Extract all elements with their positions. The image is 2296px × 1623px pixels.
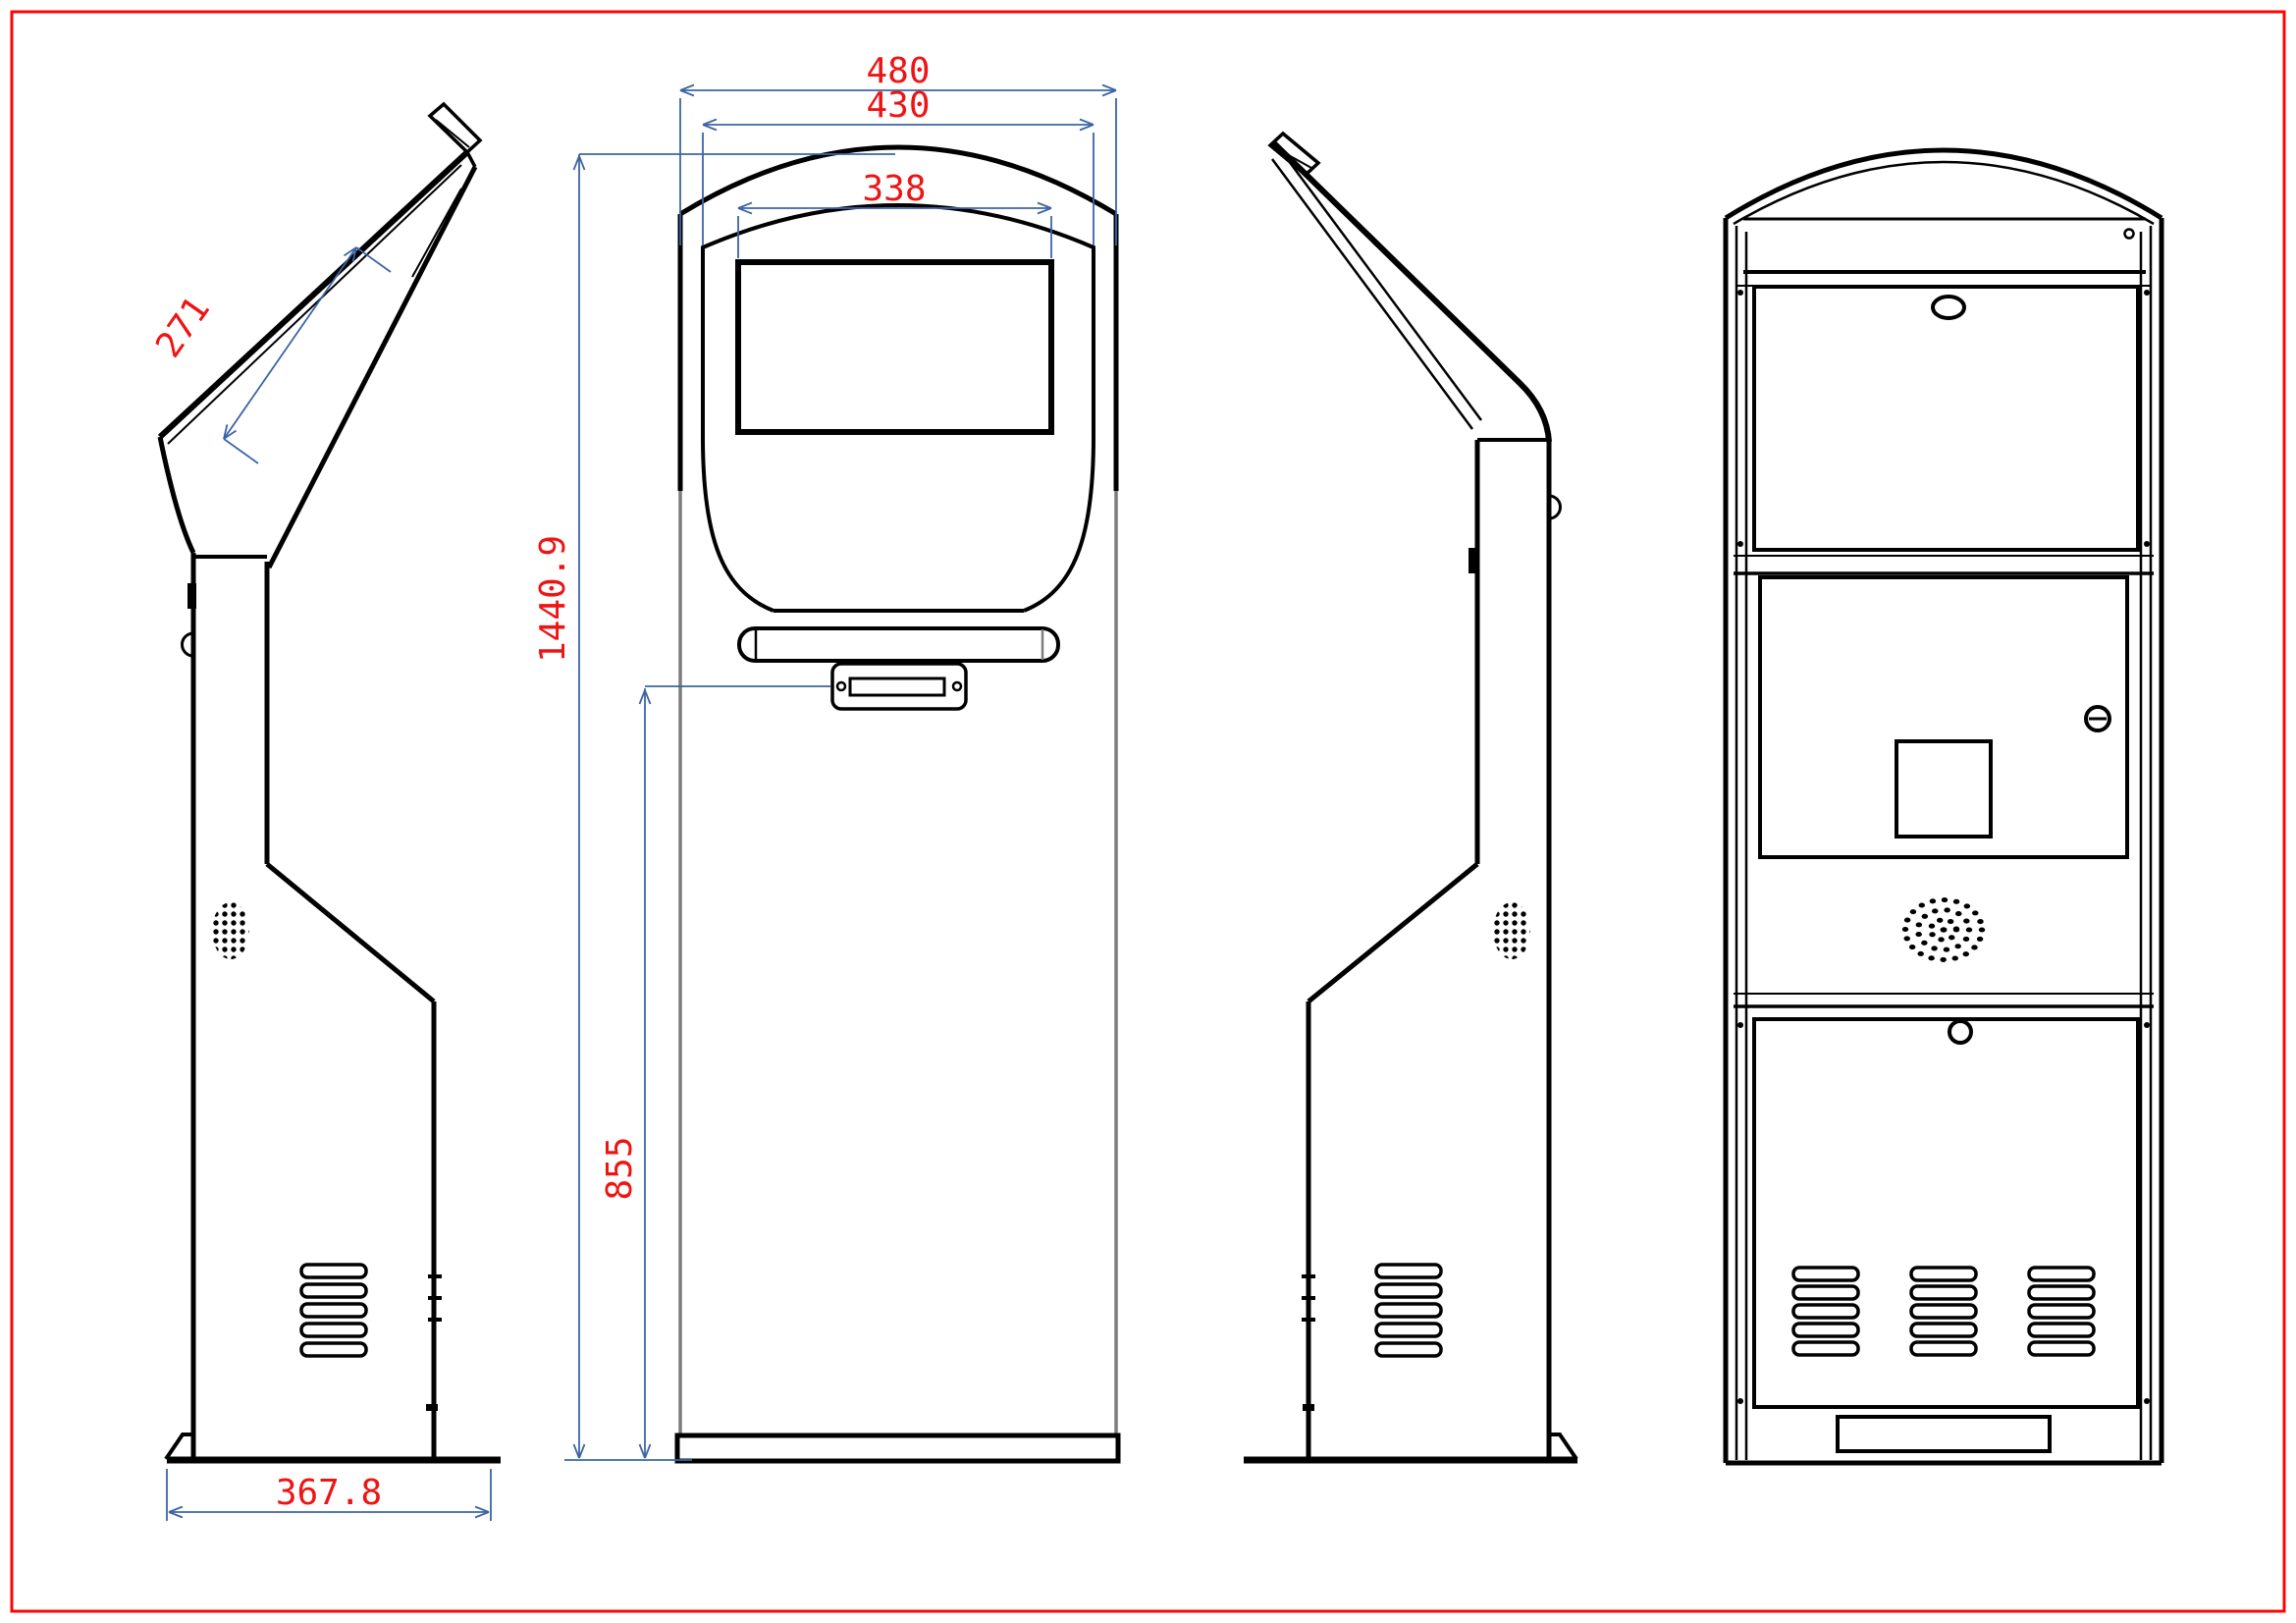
- vent-louver: [1911, 1324, 1976, 1336]
- front-latch: [187, 583, 196, 609]
- hinge-screw: [2144, 1022, 2150, 1028]
- hinge-screw: [1737, 1022, 1743, 1028]
- dim-text-430: 430: [866, 85, 930, 126]
- vent-louver: [1793, 1324, 1858, 1336]
- front-foot-bracket: [1549, 1434, 1576, 1459]
- vent-louver: [301, 1265, 366, 1277]
- dimension-total-height: 1440.9: [533, 154, 895, 1460]
- card-reader-plate: [832, 664, 966, 709]
- reader-slot: [850, 678, 944, 695]
- vent-louver: [1911, 1268, 1976, 1280]
- hinge-screw: [2144, 290, 2150, 296]
- bezel-face-outline: [703, 205, 1094, 437]
- vent-louver: [1793, 1305, 1858, 1318]
- upper-door: [1754, 287, 2138, 550]
- top-strip-screw: [2125, 230, 2134, 239]
- top-arch-outer: [1726, 150, 2162, 218]
- rear-latch-dot: [1303, 1404, 1314, 1411]
- lower-door: [1754, 1019, 2138, 1407]
- dim-text-855: 855: [600, 1136, 640, 1200]
- dim-text-1440-9: 1440.9: [533, 535, 573, 663]
- base-slot: [1838, 1417, 2050, 1451]
- hinge-screw: [1737, 541, 1743, 547]
- hinge-screw: [2144, 541, 2150, 547]
- vent-louver: [2029, 1286, 2094, 1299]
- base-plinth: [677, 1435, 1118, 1461]
- vent-louver: [1911, 1305, 1976, 1318]
- dim-text-367-8: 367.8: [276, 1473, 382, 1513]
- vent-louver: [301, 1324, 366, 1336]
- vent-louver: [2029, 1342, 2094, 1355]
- keyboard-tray-slot: [739, 628, 1058, 661]
- vent-louver: [301, 1304, 366, 1317]
- square-cutout: [1896, 741, 1991, 837]
- dimension-card-reader-height: 855: [600, 686, 830, 1458]
- hinge-screw: [1737, 290, 1743, 296]
- hinge-screw: [2144, 1398, 2150, 1404]
- dim-text-271: 271: [148, 290, 218, 365]
- reader-screw-right: [953, 682, 961, 690]
- right-side-view: [1244, 134, 1577, 1460]
- rear-view: [1726, 150, 2162, 1463]
- vent-louver: [301, 1284, 366, 1297]
- reader-plate-outline: [832, 664, 966, 709]
- screen-slope-edge: [160, 152, 467, 437]
- head-chin-curve: [160, 437, 193, 553]
- dimension-base-depth: 367.8: [167, 1469, 491, 1521]
- vent-louver: [1376, 1324, 1441, 1336]
- upper-door-knob-hole: [1933, 297, 1964, 318]
- head-top-edge: [1274, 143, 1549, 442]
- dimension-screen-width: 338: [738, 169, 1051, 258]
- vent-louver: [1376, 1304, 1441, 1317]
- vent-louver: [1376, 1343, 1441, 1356]
- vent-louver: [2029, 1305, 2094, 1318]
- hinge-screw: [1737, 1398, 1743, 1404]
- screen-window: [738, 262, 1051, 432]
- middle-door: [1760, 577, 2127, 857]
- reader-screw-left: [837, 682, 845, 690]
- kiosk-orthographic-drawing: 271 367.8: [0, 0, 2296, 1623]
- bezel-right-curve: [1024, 437, 1094, 611]
- vent-louver: [1911, 1286, 1976, 1299]
- head-underside-line-outer: [1272, 159, 1472, 429]
- vent-louver: [1376, 1284, 1441, 1297]
- rear-slope-edge: [267, 864, 434, 1001]
- vent-louver: [301, 1343, 366, 1356]
- lower-door-knob-hole: [1949, 1021, 1971, 1043]
- head-back-edge: [269, 167, 475, 568]
- rear-slope-edge: [1308, 864, 1477, 1001]
- bezel-left-curve: [703, 437, 774, 611]
- vent-louver: [1793, 1268, 1858, 1280]
- front-foot-bracket: [166, 1434, 193, 1459]
- left-side-rails: [1736, 226, 1746, 1460]
- dimension-body-width: 430: [703, 85, 1094, 245]
- rear-speaker-grille: [1905, 900, 1982, 960]
- head-cap-joint: [467, 152, 475, 167]
- head-back-inner-line: [412, 189, 461, 277]
- front-view: 480 430 338 1440.9: [533, 51, 1118, 1461]
- dim-text-338: 338: [862, 169, 926, 209]
- vent-louver: [1793, 1286, 1858, 1299]
- speaker-center-dot: [1941, 927, 1948, 932]
- side-speaker-grille: [1493, 902, 1530, 959]
- vent-louver: [1376, 1265, 1441, 1277]
- dimension-screen-panel-length: 271: [148, 244, 391, 463]
- screen-glass-line: [168, 165, 461, 444]
- left-side-view: 271 367.8: [148, 104, 501, 1521]
- head-underside-line-inner: [1280, 149, 1481, 420]
- top-arch-inner: [1734, 162, 2154, 224]
- drawing-sheet: 271 367.8: [0, 0, 2296, 1623]
- side-speaker-grille: [212, 902, 249, 959]
- rear-latch-dot: [426, 1404, 438, 1411]
- vent-louver: [2029, 1324, 2094, 1336]
- head-top-cap: [430, 104, 480, 152]
- vent-louver: [1911, 1342, 1976, 1355]
- rear-latch: [1468, 548, 1477, 573]
- vent-louver: [2029, 1268, 2094, 1280]
- vent-louver: [1793, 1342, 1858, 1355]
- right-side-rails: [2141, 226, 2151, 1460]
